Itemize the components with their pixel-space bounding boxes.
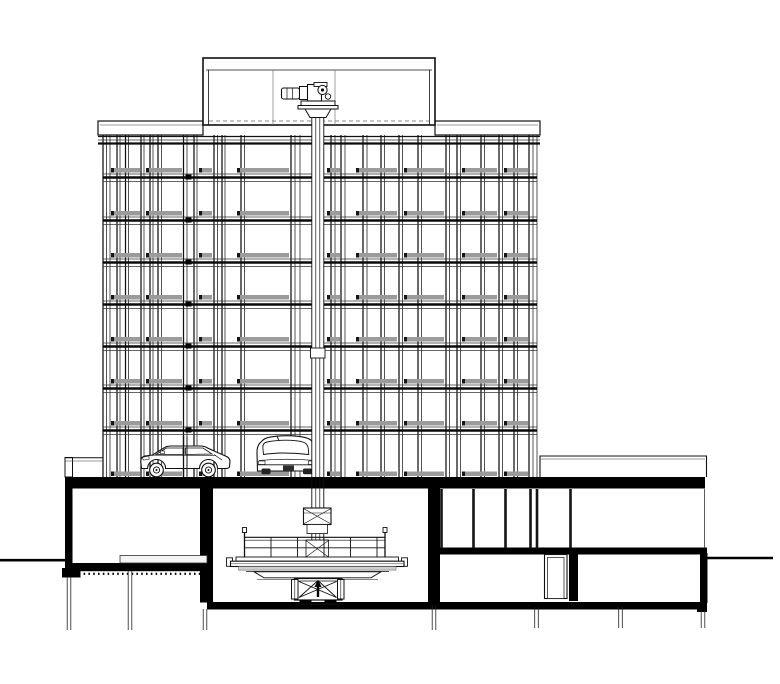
ground-slab xyxy=(67,477,705,489)
left-wall-footing xyxy=(62,568,81,578)
hoist-motor-cylinder xyxy=(282,88,300,99)
left-basement-floor-slab xyxy=(70,563,207,571)
roof-parapet-left xyxy=(98,121,203,135)
car-rear-view xyxy=(257,436,316,475)
rear-window xyxy=(263,440,309,454)
building-section-drawing xyxy=(0,0,780,684)
roof-parapet-right xyxy=(435,121,540,135)
rear-wheel-right xyxy=(303,469,312,475)
mast-splice-collar xyxy=(311,348,326,358)
door-side-wall xyxy=(569,553,578,601)
platform-base xyxy=(292,579,345,605)
license-plate xyxy=(283,466,294,472)
pit-right-wall xyxy=(428,488,440,605)
side-mirror xyxy=(161,451,165,454)
pit-and-basement-bottom-slab xyxy=(207,602,707,610)
rear-wheel-left xyxy=(262,469,271,475)
basement-plinth xyxy=(120,556,207,564)
lift-mast xyxy=(311,118,326,558)
pit-left-wall xyxy=(200,488,213,603)
door-frame xyxy=(545,555,568,599)
left-exterior-wall xyxy=(65,477,73,569)
lift-carriage xyxy=(304,508,332,558)
right-exterior-wall xyxy=(700,553,708,603)
